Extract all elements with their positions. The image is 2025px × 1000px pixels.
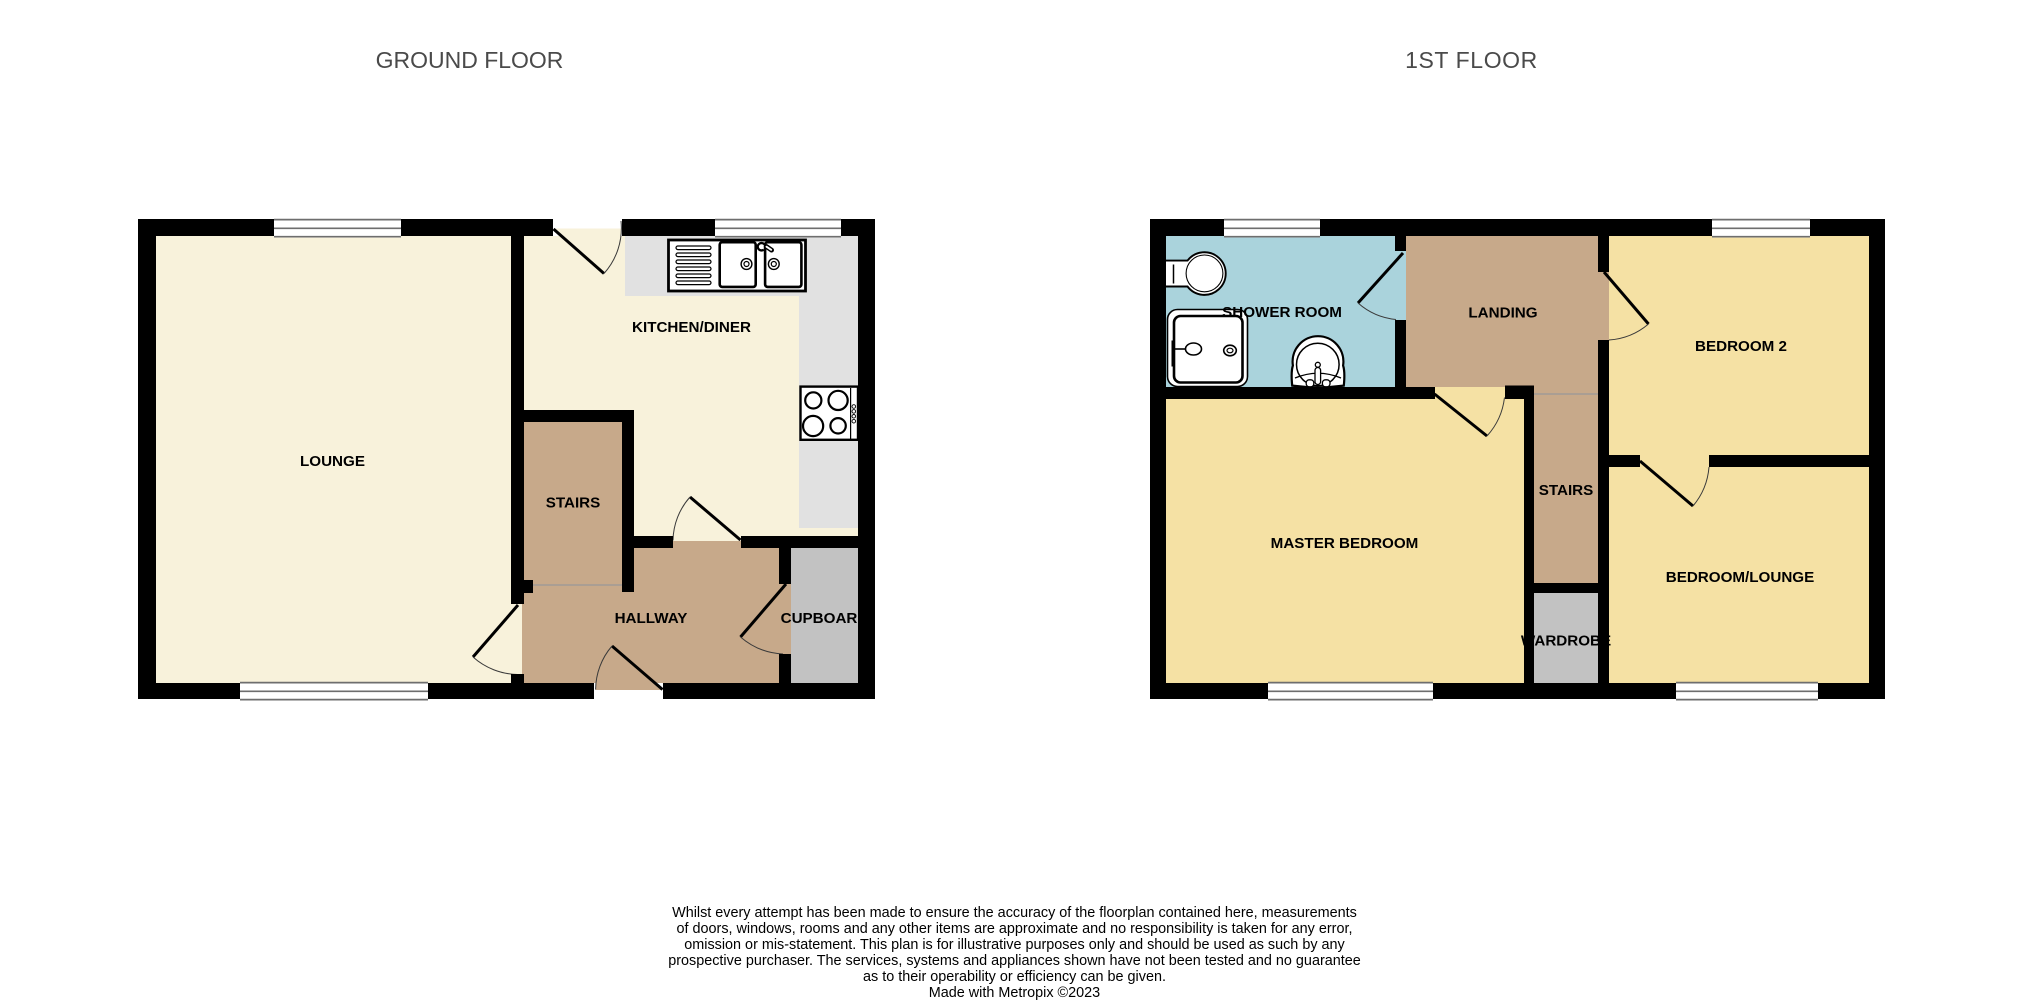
svg-text:Whilst every attempt has been: Whilst every attempt has been made to en… [672, 905, 1357, 921]
svg-text:WARDROBE: WARDROBE [1521, 633, 1611, 650]
svg-text:GROUND FLOOR: GROUND FLOOR [376, 47, 564, 73]
svg-text:Made with Metropix ©2023: Made with Metropix ©2023 [929, 985, 1100, 1000]
svg-text:STAIRS: STAIRS [1539, 482, 1594, 499]
svg-text:CUPBOARD: CUPBOARD [781, 610, 869, 627]
svg-text:LANDING: LANDING [1468, 305, 1537, 322]
svg-text:KITCHEN/DINER: KITCHEN/DINER [632, 319, 751, 336]
svg-text:MASTER BEDROOM: MASTER BEDROOM [1271, 535, 1419, 552]
svg-text:SHOWER ROOM: SHOWER ROOM [1222, 304, 1342, 321]
svg-text:BEDROOM/LOUNGE: BEDROOM/LOUNGE [1666, 569, 1815, 586]
svg-text:1ST FLOOR: 1ST FLOOR [1405, 47, 1538, 73]
svg-text:prospective purchaser. The ser: prospective purchaser. The services, sys… [668, 953, 1361, 969]
svg-text:STAIRS: STAIRS [546, 495, 601, 512]
svg-text:BEDROOM 2: BEDROOM 2 [1695, 338, 1787, 355]
svg-text:omission or mis-statement. Thi: omission or mis-statement. This plan is … [684, 937, 1345, 953]
svg-text:HALLWAY: HALLWAY [615, 610, 688, 627]
svg-text:LOUNGE: LOUNGE [300, 453, 365, 470]
svg-text:as to their operability or eff: as to their operability or efficiency ca… [863, 969, 1166, 985]
svg-text:of doors, windows, rooms and a: of doors, windows, rooms and any other i… [677, 921, 1353, 937]
